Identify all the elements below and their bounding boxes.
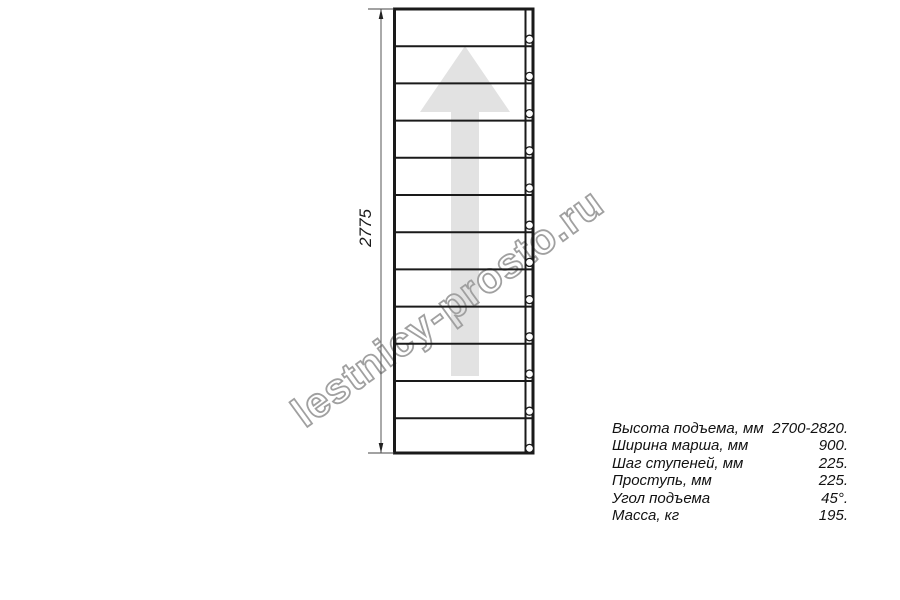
spec-value: 225. [819, 472, 848, 489]
spec-value: 45°. [821, 490, 848, 507]
dimension-label: 2775 [356, 209, 375, 248]
drawing-canvas: lestnicy-prosto.ru 2775 Высота подъема, … [0, 0, 900, 600]
mount-hole-icon [526, 110, 534, 118]
mount-hole-icon [526, 333, 534, 341]
spec-label: Масса, кг [612, 507, 679, 524]
spec-value: 225. [819, 455, 848, 472]
spec-value: 195. [819, 507, 848, 524]
mount-hole-icon [526, 35, 534, 43]
mount-hole-icon [526, 258, 534, 266]
spec-value: 2700-2820. [772, 420, 848, 437]
dimension-arrow-top-icon [379, 9, 384, 19]
mount-hole-icon [526, 296, 534, 304]
spec-label: Угол подъема [612, 490, 710, 507]
spec-row: Проступь, мм225. [612, 472, 848, 489]
spec-row: Шаг ступеней, мм225. [612, 455, 848, 472]
spec-label: Ширина марша, мм [612, 437, 748, 454]
mount-hole-icon [526, 370, 534, 378]
spec-label: Шаг ступеней, мм [612, 455, 743, 472]
spec-row: Угол подъема45°. [612, 490, 848, 507]
dimension-arrow-bottom-icon [379, 443, 384, 453]
mount-hole-icon [526, 72, 534, 80]
spec-value: 900. [819, 437, 848, 454]
mount-hole-icon [526, 184, 534, 192]
mount-hole-icon [526, 444, 534, 452]
mount-hole-icon [526, 407, 534, 415]
spec-label: Проступь, мм [612, 472, 712, 489]
spec-row: Ширина марша, мм900. [612, 437, 848, 454]
spec-row: Масса, кг195. [612, 507, 848, 524]
mount-hole-icon [526, 147, 534, 155]
mount-hole-icon [526, 221, 534, 229]
spec-table: Высота подъема, мм2700-2820.Ширина марша… [612, 420, 848, 524]
spec-row: Высота подъема, мм2700-2820. [612, 420, 848, 437]
spec-label: Высота подъема, мм [612, 420, 764, 437]
